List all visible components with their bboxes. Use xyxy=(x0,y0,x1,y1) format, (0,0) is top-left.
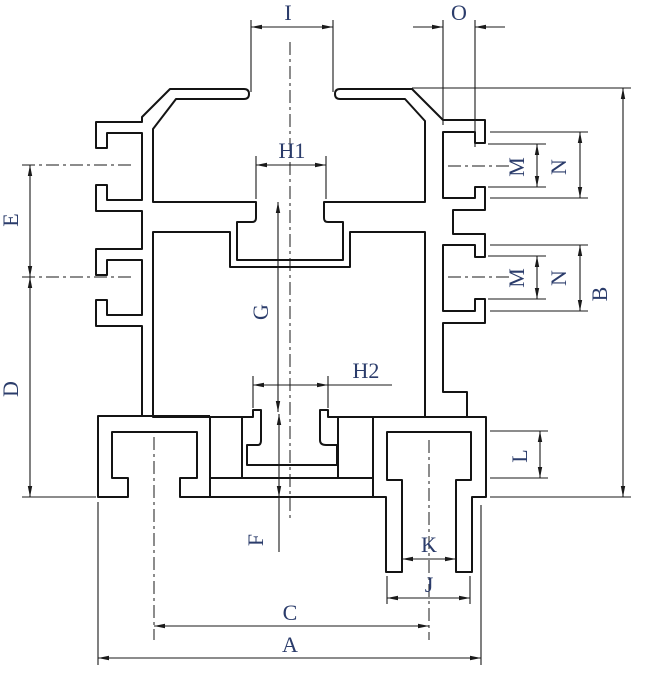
dim-label-k: K xyxy=(421,532,437,557)
dim-label-e: E xyxy=(0,213,23,226)
extrusion-profile-drawing: I O H1 E D G H2 F M N M N B L K J C A xyxy=(0,0,654,683)
dim-label-m-upper: M xyxy=(504,157,529,177)
dim-label-h2: H2 xyxy=(353,358,380,383)
dim-label-h1: H1 xyxy=(279,138,306,163)
dim-label-n-upper: N xyxy=(546,159,571,175)
dim-label-j: J xyxy=(425,572,434,597)
dim-label-a: A xyxy=(282,632,298,657)
dim-label-i: I xyxy=(284,0,291,25)
dim-label-c: C xyxy=(283,600,298,625)
dim-label-m-lower: M xyxy=(504,268,529,288)
dim-label-o: O xyxy=(451,0,467,25)
dim-label-d: D xyxy=(0,381,23,397)
dim-label-g: G xyxy=(248,304,273,320)
dim-label-n-lower: N xyxy=(546,270,571,286)
dim-label-b: B xyxy=(587,287,612,302)
dim-label-l: L xyxy=(507,449,532,462)
dim-label-f: F xyxy=(243,534,268,546)
technical-drawing-canvas: I O H1 E D G H2 F M N M N B L K J C A xyxy=(0,0,654,683)
